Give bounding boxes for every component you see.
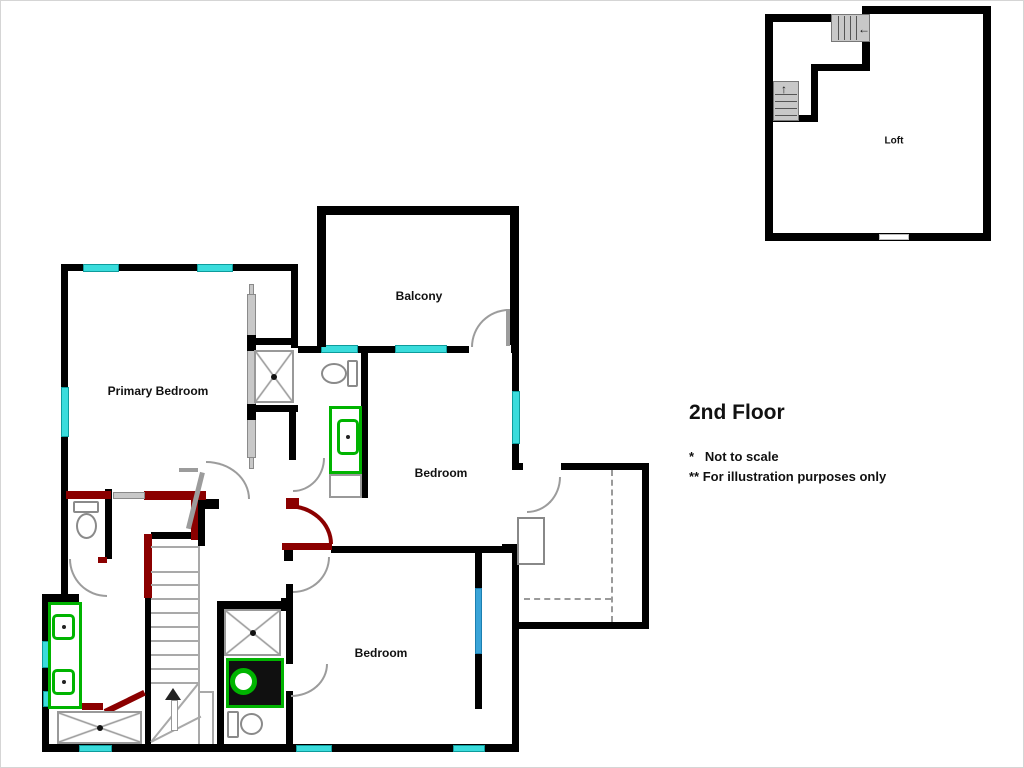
- wall: [765, 14, 773, 241]
- stair-landing-line: [198, 691, 200, 744]
- wall: [765, 233, 991, 241]
- stair-tread: [151, 668, 198, 670]
- room-label-primary-bedroom: Primary Bedroom: [108, 384, 209, 398]
- window: [197, 264, 233, 272]
- note-not-to-scale: * Not to scale: [689, 449, 779, 464]
- window: [321, 345, 358, 353]
- wall: [286, 584, 293, 664]
- wall: [286, 691, 293, 744]
- room-label-loft: Loft: [885, 136, 904, 147]
- wall: [145, 598, 151, 744]
- door-arc: [69, 559, 107, 597]
- wall: [983, 6, 991, 241]
- wall: [281, 598, 291, 611]
- wall-red: [144, 534, 152, 598]
- wall: [198, 499, 205, 546]
- stair-tread: [151, 612, 198, 614]
- stair-tread: [151, 584, 198, 586]
- wall: [247, 335, 256, 351]
- toilet-tank: [227, 711, 239, 738]
- balcony-door-leaf: [506, 309, 510, 346]
- wall: [105, 489, 112, 559]
- faucet-dot: [62, 680, 66, 684]
- window: [83, 264, 119, 272]
- wall: [317, 206, 519, 215]
- wall: [289, 412, 296, 460]
- shower-stall: [254, 350, 294, 403]
- room-label-bedroom-middle: Bedroom: [415, 466, 468, 480]
- stair-tread: [151, 598, 198, 600]
- stair-tread: [844, 16, 845, 40]
- stair-tread: [775, 101, 797, 102]
- window: [296, 745, 332, 752]
- stair-tread: [775, 108, 797, 109]
- stair-tread: [838, 16, 839, 40]
- stair-tread: [856, 16, 857, 40]
- door-arc: [206, 461, 250, 499]
- cabinet: [517, 517, 545, 565]
- door-arc-red: [288, 504, 333, 544]
- wall: [249, 338, 298, 345]
- counter: [329, 474, 362, 498]
- stair-tread: [151, 682, 198, 684]
- toilet-bowl: [240, 713, 263, 735]
- wall: [475, 553, 482, 588]
- sink: [52, 614, 75, 640]
- room-label-balcony: Balcony: [396, 289, 443, 303]
- toilet-tank: [347, 360, 358, 387]
- sink-round: [230, 668, 257, 695]
- wall: [217, 601, 224, 751]
- wall: [642, 463, 649, 629]
- balcony-door-arc: [471, 309, 509, 347]
- wall-red: [66, 491, 111, 499]
- shower-stall: [224, 609, 281, 656]
- door-arc: [293, 458, 325, 492]
- stair-tread: [151, 626, 198, 628]
- stair-tread: [151, 571, 198, 573]
- wall: [247, 404, 256, 420]
- stair-left-arrow-icon: ←: [858, 23, 870, 35]
- wall: [475, 654, 482, 709]
- stair-rail: [198, 546, 200, 692]
- wall: [284, 549, 293, 561]
- drain-dot: [97, 725, 103, 731]
- sink: [337, 419, 359, 455]
- door-leaf-red: [82, 703, 103, 710]
- door-opening: [523, 462, 561, 471]
- door-arc: [291, 664, 328, 697]
- wall: [249, 405, 298, 412]
- sink: [52, 669, 75, 695]
- closet-slider-tip: [249, 457, 254, 469]
- faucet-dot: [346, 435, 350, 439]
- toilet-bowl: [321, 363, 347, 384]
- note-illustration-only: ** For illustration purposes only: [689, 469, 886, 484]
- wall: [361, 350, 368, 498]
- ceiling-break-line: [611, 470, 613, 622]
- door-leaf-tip: [179, 468, 198, 472]
- drain-dot: [271, 374, 277, 380]
- wall: [42, 744, 519, 752]
- door-arc: [527, 477, 561, 513]
- page-title: 2nd Floor: [689, 401, 785, 425]
- window-interior-blue: [475, 588, 482, 654]
- stair-tread: [151, 640, 198, 642]
- door-opening: [879, 234, 909, 240]
- toilet-tank: [73, 501, 99, 513]
- drain-dot: [250, 630, 256, 636]
- wall: [512, 553, 519, 751]
- loft-stairs-lower: ↑: [773, 81, 799, 121]
- toilet-bowl: [76, 513, 97, 539]
- loft-stairs-upper: ←: [831, 14, 870, 42]
- faucet-dot: [62, 625, 66, 629]
- window: [453, 745, 485, 752]
- stair-up-arrow-icon: ↑: [781, 83, 787, 95]
- ceiling-break-line: [524, 598, 611, 600]
- door-leaf-red: [282, 543, 332, 550]
- wall: [512, 622, 649, 629]
- door-arc: [293, 557, 330, 593]
- window: [79, 745, 112, 752]
- wall: [331, 546, 519, 553]
- shower-stall: [57, 711, 142, 744]
- wall: [862, 6, 991, 14]
- wall: [811, 64, 818, 122]
- room-label-bedroom-lower: Bedroom: [355, 646, 408, 660]
- wall: [510, 206, 519, 347]
- stair-tread: [850, 16, 851, 40]
- floor-plan-canvas: ← ↑ Primary Bedroom Balcony Bedroom Bedr…: [0, 0, 1024, 768]
- bifold-door: [113, 492, 145, 499]
- wall: [811, 64, 870, 71]
- window: [395, 345, 447, 353]
- stair-tread: [151, 546, 198, 548]
- window: [512, 391, 520, 444]
- window: [61, 387, 69, 437]
- wall: [291, 264, 298, 348]
- stair-landing-line: [212, 691, 214, 744]
- closet-slider-tip: [249, 284, 254, 295]
- wall: [317, 206, 326, 347]
- stair-tread: [775, 115, 797, 116]
- stair-tread: [151, 654, 198, 656]
